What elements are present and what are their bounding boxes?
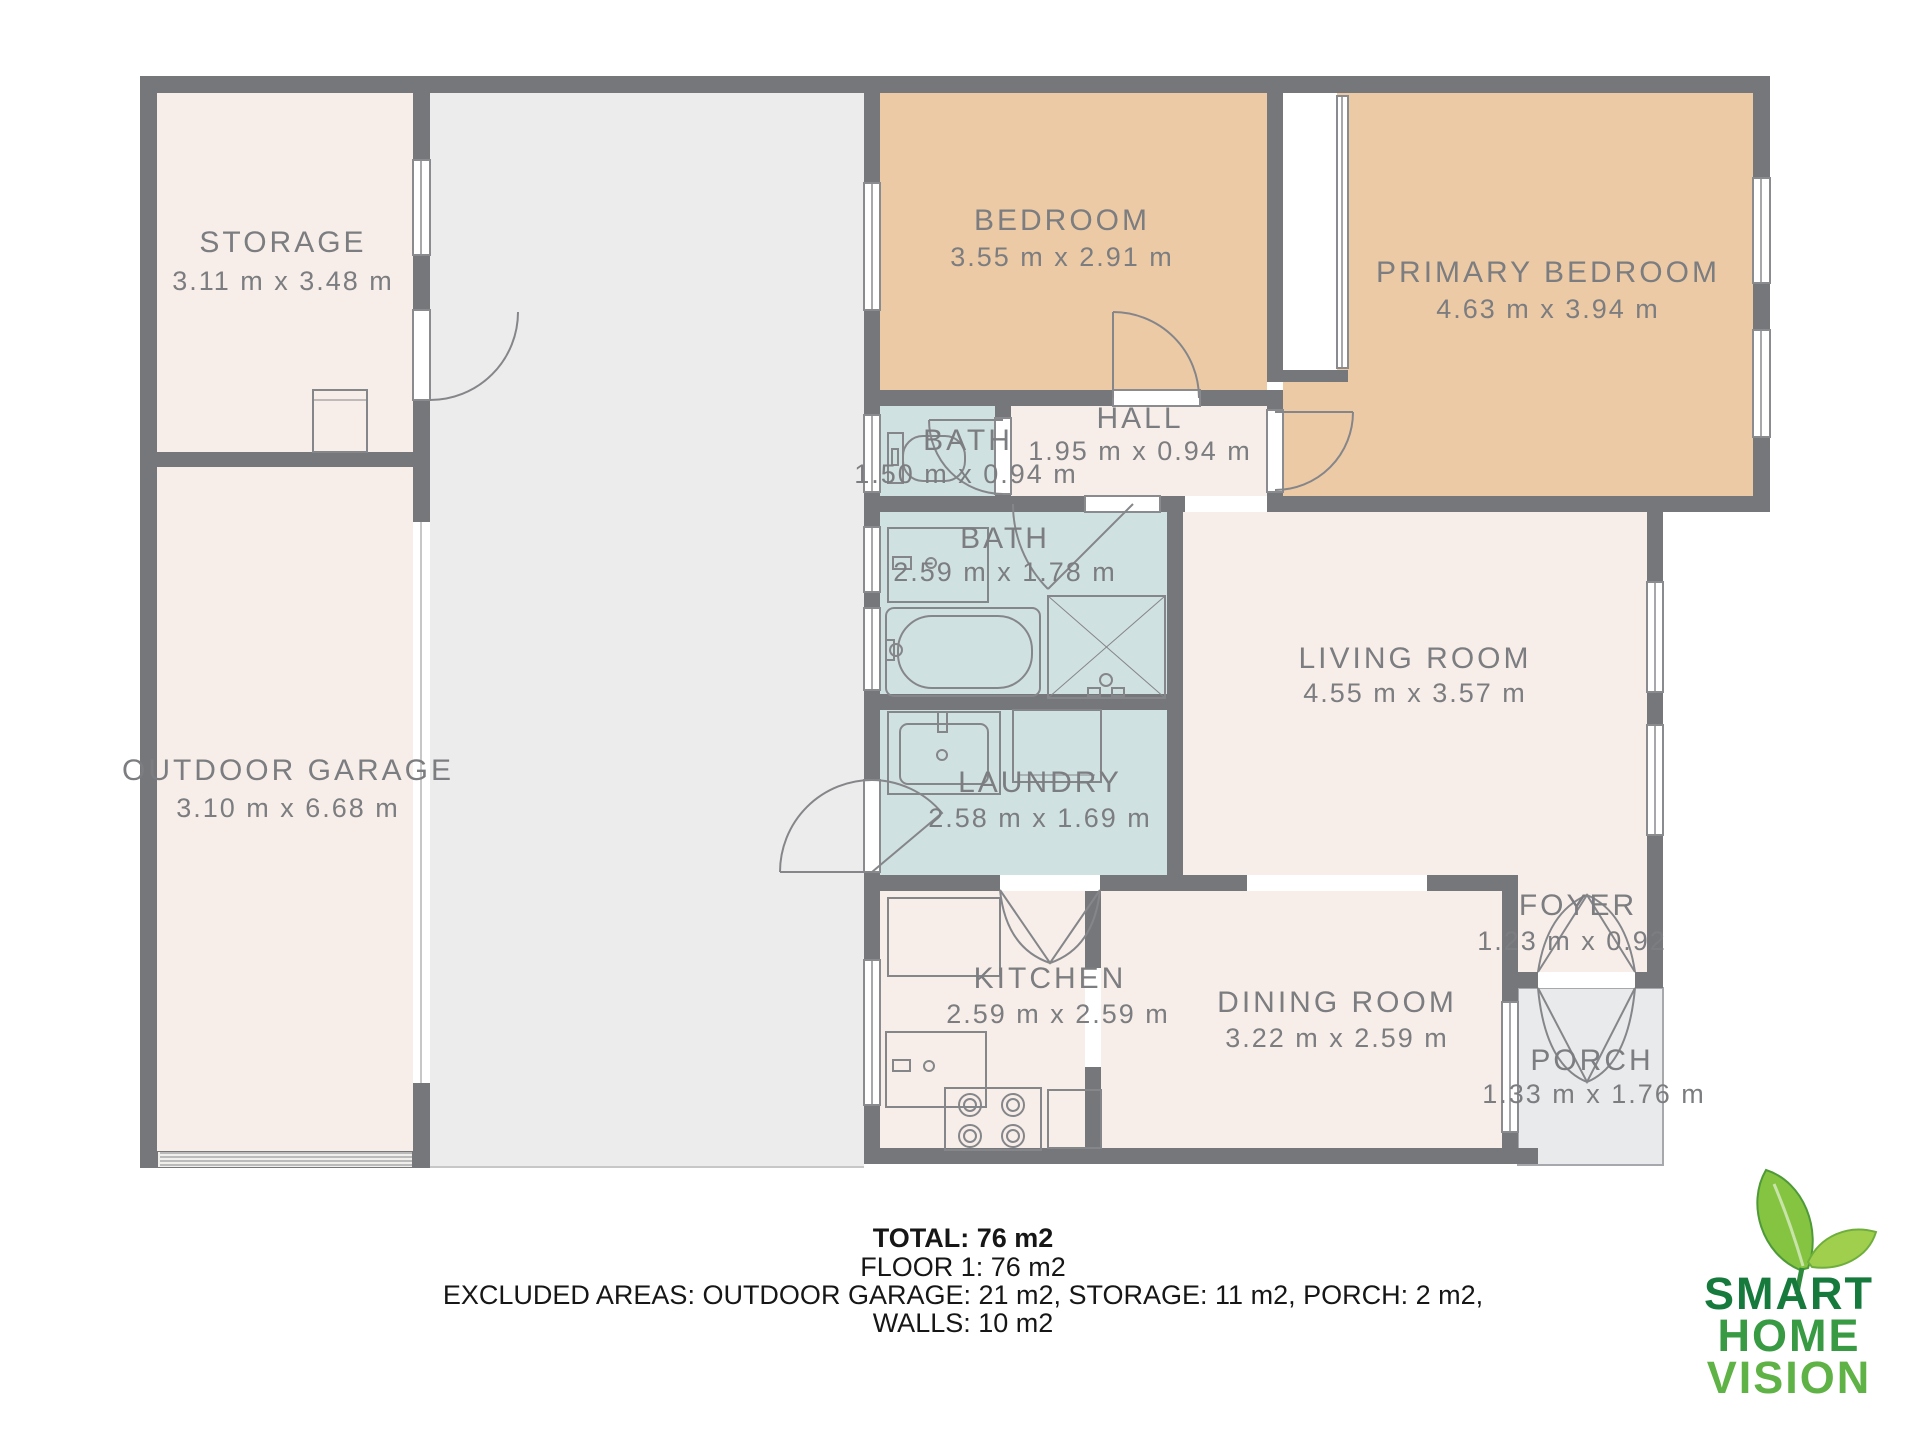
outdoor-areas <box>430 92 864 1168</box>
label-bath-main: BATH <box>960 522 1050 555</box>
dims-foyer: 1.23 m x 0.92 <box>1477 926 1667 956</box>
dims-storage: 3.11 m x 3.48 m <box>172 266 394 296</box>
label-bedroom: BEDROOM <box>974 204 1150 237</box>
room-bedroom <box>880 92 1267 390</box>
window-icon <box>864 960 880 1105</box>
window-icon <box>1502 1002 1518 1132</box>
label-primary-bedroom: PRIMARY BEDROOM <box>1376 256 1720 289</box>
dims-living: 4.55 m x 3.57 m <box>1303 678 1527 708</box>
label-living: LIVING ROOM <box>1298 642 1531 675</box>
dims-dining: 3.22 m x 2.59 m <box>1225 1023 1449 1053</box>
window-icon <box>864 183 880 310</box>
window-icon <box>1647 725 1663 835</box>
dims-kitchen: 2.59 m x 2.59 m <box>946 999 1170 1029</box>
passage-living-dining <box>1247 875 1427 891</box>
dims-bath-main: 2.59 m x 1.78 m <box>893 557 1117 587</box>
window-icon <box>864 527 880 592</box>
window-icon <box>413 160 430 255</box>
label-dining: DINING ROOM <box>1217 986 1457 1019</box>
dims-primary-bedroom: 4.63 m x 3.94 m <box>1436 294 1660 324</box>
dims-porch: 1.33 m x 1.76 m <box>1482 1079 1706 1109</box>
dims-bedroom: 3.55 m x 2.91 m <box>950 242 1174 272</box>
closet-slider-icon <box>1337 96 1348 368</box>
window-icon <box>864 608 880 690</box>
dims-hall: 1.95 m x 0.94 m <box>1028 436 1252 466</box>
dims-garage: 3.10 m x 6.68 m <box>176 793 400 823</box>
window-icon <box>1753 330 1770 437</box>
label-porch: PORCH <box>1530 1044 1653 1077</box>
window-icon <box>1647 582 1663 692</box>
window-icon <box>1753 178 1770 283</box>
label-laundry: LAUNDRY <box>958 766 1122 799</box>
label-hall: HALL <box>1096 402 1183 435</box>
dims-laundry: 2.58 m x 1.69 m <box>928 803 1152 833</box>
label-storage: STORAGE <box>199 226 366 259</box>
label-garage: OUTDOOR GARAGE <box>122 754 454 787</box>
garage-door-icon <box>158 1152 412 1167</box>
summary-floor: FLOOR 1: 76 m2 <box>860 1252 1066 1282</box>
passage-hall-living <box>1185 496 1267 512</box>
room-driveway <box>430 92 864 1168</box>
summary-total: TOTAL: 76 m2 <box>873 1223 1054 1253</box>
summary-walls: WALLS: 10 m2 <box>873 1308 1054 1338</box>
logo-vision: VISION <box>1707 1352 1872 1403</box>
label-bath-small: BATH <box>923 424 1013 457</box>
label-foyer: FOYER <box>1519 889 1637 922</box>
floor-plan-canvas: STORAGE 3.11 m x 3.48 m OUTDOOR GARAGE 3… <box>0 0 1920 1440</box>
logo: SMART HOME VISION <box>1704 1170 1876 1403</box>
summary-excluded: EXCLUDED AREAS: OUTDOOR GARAGE: 21 m2, S… <box>443 1280 1483 1310</box>
summary-block: TOTAL: 76 m2 FLOOR 1: 76 m2 EXCLUDED ARE… <box>443 1223 1483 1338</box>
label-kitchen: KITCHEN <box>974 962 1127 995</box>
closet <box>1283 92 1337 370</box>
floor-plan-page: STORAGE 3.11 m x 3.48 m OUTDOOR GARAGE 3… <box>0 0 1920 1440</box>
